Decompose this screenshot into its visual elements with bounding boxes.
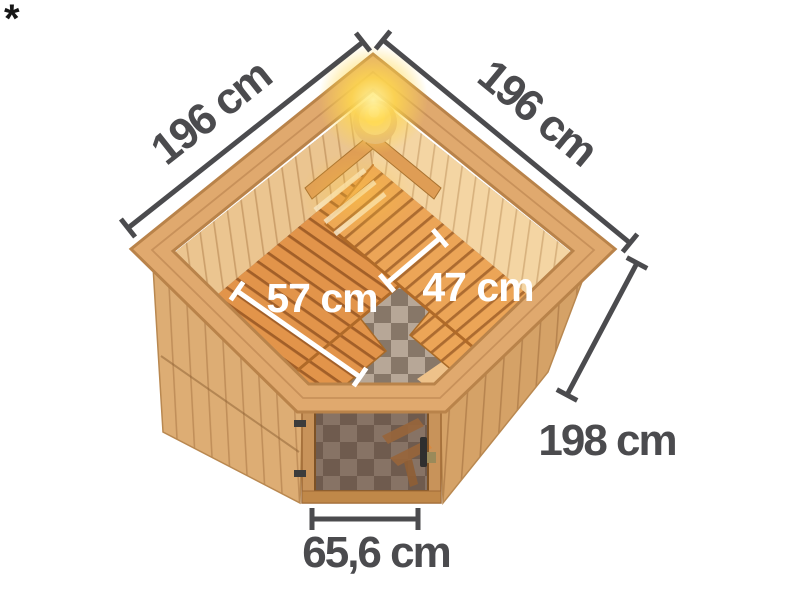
dimension-label-bench-left: 57 cm [266,275,377,321]
door-hinge-icon [294,470,306,477]
door-glass-tint [315,407,428,491]
sauna-dimension-diagram: 196 cm 196 cm 198 cm 65,6 cm 57 cm [0,0,800,600]
dimension-label-door-width: 65,6 cm [302,528,449,577]
door-latch [427,452,436,463]
dimension-label-bench-right: 47 cm [422,264,533,310]
footnote-asterisk: * [4,0,20,41]
product-image-canvas: 196 cm 196 cm 198 cm 65,6 cm 57 cm [0,0,800,600]
dimension-label-wall-height: 198 cm [538,416,675,465]
dimension-door-width: 65,6 cm [302,508,449,577]
door-sill [302,491,441,503]
door-handle [420,437,427,467]
light-pool [300,151,416,239]
door-hinge-icon [294,420,306,427]
